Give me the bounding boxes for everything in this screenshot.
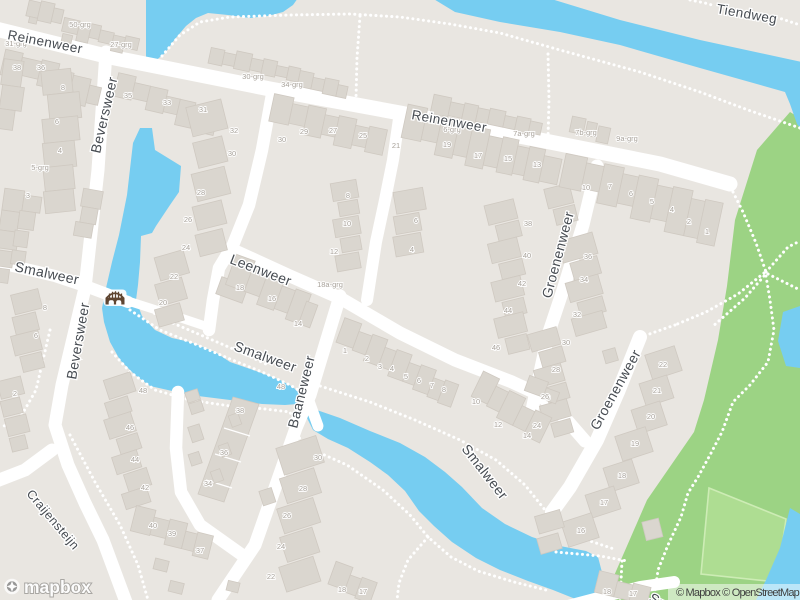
svg-text:38: 38 [524, 219, 532, 228]
svg-text:5: 5 [404, 372, 408, 381]
svg-text:9a-grg: 9a-grg [616, 134, 638, 143]
svg-text:8: 8 [346, 191, 350, 200]
svg-text:48: 48 [139, 386, 147, 395]
svg-text:10: 10 [582, 183, 590, 192]
svg-text:3: 3 [378, 362, 382, 371]
svg-text:mapbox: mapbox [24, 577, 91, 597]
svg-text:30: 30 [228, 149, 236, 158]
svg-text:1: 1 [343, 346, 347, 355]
svg-text:24: 24 [182, 243, 190, 252]
svg-text:22: 22 [267, 572, 275, 581]
svg-text:7: 7 [430, 381, 434, 390]
svg-text:10: 10 [343, 219, 351, 228]
svg-text:18: 18 [236, 283, 244, 292]
svg-text:2: 2 [687, 217, 691, 226]
svg-text:12: 12 [494, 420, 502, 429]
svg-text:34: 34 [204, 479, 212, 488]
svg-text:3: 3 [26, 191, 30, 200]
svg-text:36: 36 [584, 252, 592, 261]
svg-text:35: 35 [124, 91, 132, 100]
svg-text:7: 7 [608, 182, 612, 191]
svg-text:32: 32 [230, 126, 238, 135]
svg-text:44: 44 [504, 306, 512, 315]
svg-text:42: 42 [141, 483, 149, 492]
svg-text:17: 17 [474, 151, 482, 160]
svg-text:26: 26 [283, 511, 291, 520]
svg-text:25: 25 [359, 131, 367, 140]
svg-text:30-grg: 30-grg [242, 72, 264, 81]
svg-text:18: 18 [338, 585, 346, 594]
svg-text:26: 26 [184, 215, 192, 224]
svg-text:38: 38 [13, 63, 21, 72]
svg-text:8: 8 [43, 303, 47, 312]
svg-text:13: 13 [533, 160, 541, 169]
svg-text:30: 30 [314, 453, 322, 462]
svg-text:36: 36 [37, 63, 45, 72]
svg-text:8: 8 [442, 385, 446, 394]
svg-text:1: 1 [705, 227, 709, 236]
svg-text:22: 22 [170, 272, 178, 281]
svg-text:21: 21 [653, 386, 661, 395]
svg-text:10: 10 [472, 397, 480, 406]
svg-text:4: 4 [670, 205, 674, 214]
svg-text:50-grg: 50-grg [69, 20, 91, 29]
svg-text:28: 28 [299, 484, 307, 493]
svg-text:4: 4 [58, 146, 62, 155]
svg-text:26: 26 [541, 392, 549, 401]
svg-text:20: 20 [647, 412, 655, 421]
svg-text:29: 29 [300, 127, 308, 136]
svg-text:39: 39 [168, 529, 176, 538]
svg-text:17: 17 [629, 589, 637, 598]
svg-text:37: 37 [196, 546, 204, 555]
svg-text:17: 17 [600, 498, 608, 507]
svg-text:6: 6 [417, 376, 421, 385]
svg-text:18: 18 [603, 587, 611, 596]
svg-text:34: 34 [580, 275, 588, 284]
svg-text:5-grg: 5-grg [31, 163, 49, 172]
svg-text:© Mapbox © OpenStreetMap: © Mapbox © OpenStreetMap [676, 587, 800, 599]
svg-text:46: 46 [492, 343, 500, 352]
svg-text:16: 16 [577, 526, 585, 535]
svg-text:17: 17 [359, 587, 367, 596]
svg-text:46: 46 [126, 423, 134, 432]
svg-text:33: 33 [163, 98, 171, 107]
svg-text:15: 15 [504, 154, 512, 163]
svg-text:32: 32 [573, 310, 581, 319]
svg-text:20: 20 [159, 298, 167, 307]
svg-text:18a-grg: 18a-grg [317, 280, 343, 289]
svg-text:7a-grg: 7a-grg [513, 129, 535, 138]
svg-text:44: 44 [131, 455, 139, 464]
svg-text:27: 27 [329, 126, 337, 135]
svg-text:40: 40 [149, 521, 157, 530]
svg-text:6: 6 [414, 216, 418, 225]
svg-text:27-grg: 27-grg [110, 40, 132, 49]
svg-text:24: 24 [533, 421, 541, 430]
svg-text:7b-grg: 7b-grg [575, 128, 597, 137]
svg-text:6: 6 [629, 189, 633, 198]
svg-text:14: 14 [294, 319, 302, 328]
svg-text:8: 8 [61, 83, 65, 92]
svg-text:24: 24 [277, 542, 285, 551]
svg-text:6: 6 [55, 117, 59, 126]
svg-text:40: 40 [523, 251, 531, 260]
svg-text:21: 21 [392, 141, 400, 150]
svg-text:38: 38 [236, 406, 244, 415]
svg-text:22: 22 [659, 360, 667, 369]
svg-text:31: 31 [199, 105, 207, 114]
svg-text:28: 28 [197, 188, 205, 197]
svg-text:2: 2 [365, 354, 369, 363]
svg-text:18: 18 [618, 471, 626, 480]
svg-text:5: 5 [650, 197, 654, 206]
svg-text:48: 48 [277, 382, 285, 391]
svg-text:12: 12 [330, 247, 338, 256]
svg-text:42: 42 [518, 279, 526, 288]
svg-text:30: 30 [278, 135, 286, 144]
svg-text:2: 2 [13, 389, 17, 398]
svg-text:14: 14 [523, 431, 531, 440]
svg-text:30: 30 [562, 338, 570, 347]
svg-text:19: 19 [631, 439, 639, 448]
svg-text:4: 4 [410, 245, 414, 254]
svg-text:4: 4 [390, 364, 394, 373]
svg-text:34-grg: 34-grg [281, 80, 303, 89]
svg-text:19: 19 [443, 140, 451, 149]
svg-text:6: 6 [34, 331, 38, 340]
svg-text:16: 16 [268, 294, 276, 303]
svg-text:28: 28 [552, 365, 560, 374]
svg-text:36: 36 [220, 448, 228, 457]
